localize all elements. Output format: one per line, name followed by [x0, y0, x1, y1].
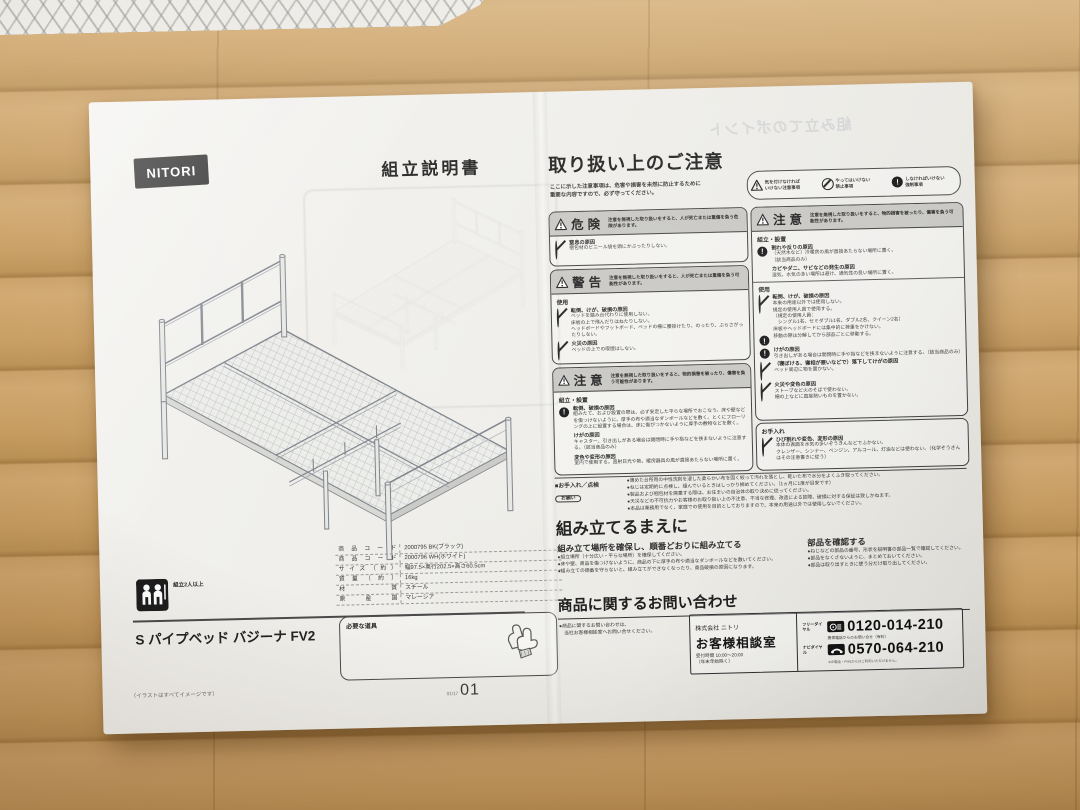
navi-dial-number: 0570-064-210 [848, 639, 945, 657]
spec-label: 質量（約） [336, 574, 401, 585]
warning-box: 警告 注意を無視した取り扱いをすると、人が死亡または重傷を負う可能性があります。… [550, 265, 751, 365]
caution-item: （寝ぼける、寝相が悪いなどで）落下してけがの原因 ベッド周辺に物を置かない。 [760, 357, 961, 381]
spec-label: 材質 [336, 584, 401, 595]
prohibition-icon [760, 383, 762, 402]
caution-title: 注意 [573, 369, 606, 389]
assembly-people-label: 組立2人以上 [173, 578, 204, 589]
page-number-left: 01/17 01 [446, 681, 480, 700]
danger-item: 窒息の原因 梱包材のビニール袋を頭にかぶったりしない。 [555, 236, 742, 259]
handling-precautions-header: 取り扱い上のご注意 [548, 148, 724, 178]
danger-desc: 注意を無視した取り扱いをすると、人が死亡または重傷を負う危険があります。 [608, 214, 742, 229]
legend-label: やってはいけない禁止事項 [835, 177, 870, 189]
check-parts-bullets: ●ねじなどの部品の番号、形状を説明書の部品一覧で確認してください。 ●部品をなく… [807, 546, 972, 571]
check-parts-title: 部品を確認する [807, 535, 866, 548]
warning-title: 警告 [572, 271, 605, 291]
caution-item: ! 転倒、破損の原因 組みたて、および設置の際は、必ず安定した平らな場所でおこな… [559, 402, 747, 469]
photo-scene: 組み立てのポイント NITORI 組立説明書 [0, 0, 1080, 810]
spec-label: 原産国 [336, 594, 401, 605]
navi-dial-label: ナビダイヤル [803, 645, 825, 654]
legend-label: しなければいけない強制事項 [905, 175, 945, 187]
spec-table: 商品コード 2000795 BK(ブラック) 商品コード 2000796 WH(… [335, 540, 562, 605]
maintenance-label: ■お手入れ／点検 [555, 479, 627, 494]
warning-desc: 注意を無視した取り扱いをすると、人が死亡または重傷を負う可能性があります。 [609, 272, 743, 287]
cause-line: キャスター、引き出しがある場合は開閉時に手や指などを挟まないように注意する。（該… [574, 436, 747, 453]
caution-box-right: 注意 注意を無視した取り扱いをすると、物的損害を被ったり、傷害を負う可能性があり… [750, 202, 968, 421]
mandatory-icon: ! [759, 336, 769, 346]
warning-item: 転倒、けが、破損の原因 ベッドを踏み台代わりに使用しない。 床板の上で飛んだりは… [557, 304, 745, 340]
office-hours: 受付時間 10:00～20:00（年末年始除く） [696, 651, 792, 665]
assembly-place-bullets: ●組立場所（十分広い・平らな場所）を確保してください。 ●床や壁、商品を傷つけな… [557, 550, 795, 576]
spec-label: 商品コード [335, 544, 400, 555]
bed-illustration [132, 238, 539, 567]
nitori-logo: NITORI [134, 154, 210, 188]
prohibition-icon [557, 308, 559, 327]
two-person-icon [136, 579, 169, 612]
illustration-disclaimer: （イラストはすべてイメージです） [131, 690, 218, 700]
required-tools-box: 必要な道具 [339, 612, 558, 681]
mandatory-icon: ! [757, 246, 767, 256]
assembly-people-note: 組立2人以上 [136, 578, 204, 612]
warning-triangle-icon [756, 212, 769, 226]
inquiry-note-line: 当社お客様相談室へお問い合せください。 [559, 628, 684, 638]
page-number: 01 [460, 681, 480, 699]
maintenance-section: ■お手入れ／点検 ●薄めた台所用の中性洗剤を浸した柔らかい布を固く絞って汚れを落… [555, 468, 968, 516]
mandatory-icon: ! [892, 176, 903, 187]
required-tools-title: 必要な道具 [346, 621, 377, 631]
office-name: お客様相談室 [695, 631, 791, 652]
legend-label: 気を付けなければいけない注意事項 [765, 179, 800, 191]
page-code: 01/17 [447, 691, 459, 696]
manual-title: 組立説明書 [336, 152, 527, 181]
precautions-intro: ここに示した注意事項は、危害や損害を未然に防止するために 重要な内容ですので、必… [550, 180, 746, 200]
danger-box: 危険 注意を無視した取り扱いをすると、人が死亡または重傷を負う危険があります。 … [548, 207, 748, 267]
phone-handset-icon [828, 644, 845, 655]
warning-item: 火災の原因 ベッドの上での喫煙はしない。 [557, 337, 744, 360]
danger-title: 危険 [571, 213, 604, 233]
care-box: お手入れ ひび割れや変色、変形の原因 本体の表面を水気の多いぞうきんなどでふかな… [755, 418, 969, 471]
legend-prohibited: やってはいけない禁止事項 [818, 176, 889, 190]
work-gloves-icon [496, 621, 549, 662]
prohibition-icon [758, 295, 760, 314]
wire-rack [0, 0, 495, 35]
caution-title: 注意 [773, 209, 806, 229]
caution-item: 火災や変色の原因 ストーブなど火のそばで使わない。 柵の上などに直接熱いものを置… [760, 378, 961, 402]
caution-item: ! 割れや反りの原因 （天然木など）冷暖房の風が直接あたらない場所に置く。 （該… [757, 241, 959, 280]
caution-item: 転倒、けが、破損の原因 本来の用途以外では使用しない。 規定の使用人員で使用する… [758, 291, 960, 334]
prohibition-icon [760, 362, 762, 381]
contact-box: 株式会社 ニトリ お客様相談室 受付時間 10:00～20:00（年末年始除く）… [689, 608, 964, 674]
product-name: S パイプベッド バジーナ FV2 [135, 624, 315, 648]
contact-office: 株式会社 ニトリ お客様相談室 受付時間 10:00～20:00（年末年始除く） [690, 613, 798, 674]
prohibition-icon [762, 437, 764, 456]
instruction-manual-sheet: 組み立てのポイント NITORI 組立説明書 [89, 82, 988, 735]
cause-line: 組みたて、および設置の際は、必ず安定した平らな場所でおこなう。床や壁などを傷つけ… [573, 408, 746, 431]
symbol-legend: 気を付けなければいけない注意事項 やってはいけない禁止事項 ! しなければいけな… [746, 166, 961, 200]
contact-numbers: フリーダイヤル 0120-014-210 携帯電話からのお問い合せ（有料） ナビ… [797, 609, 963, 671]
mandatory-icon: ! [559, 407, 569, 417]
care-item: ひび割れや変色、変形の原因 本体の表面を水気の多いぞうきんなどでふかない。 クレ… [762, 433, 964, 463]
legend-mandatory: ! しなければいけない強制事項 [889, 175, 960, 188]
bleed-through-title: 組み立てのポイント [707, 113, 852, 140]
prohibition-icon [555, 240, 557, 259]
before-assembly-header: 組み立てるまえに [556, 513, 689, 540]
request-pill: お願い [555, 495, 582, 503]
caution-desc: 注意を無視した取り扱いをすると、物的損害を被ったり、傷害を負う可能性があります。 [610, 370, 745, 385]
warning-triangle-icon [558, 373, 570, 387]
free-dial-number: 0120-014-210 [847, 616, 944, 634]
caution-desc: 注意を無視した取り扱いをすると、物的損害を被ったり、傷害を負う可能性があります。 [810, 209, 958, 224]
free-dial-label: フリーダイヤル [802, 622, 824, 631]
warning-triangle-icon [555, 217, 568, 231]
legend-caution: 気を付けなければいけない注意事項 [748, 178, 819, 191]
inquiry-note: ●商品に関するお問い合わせは、 当社お客様相談室へお問い合せください。 [559, 621, 684, 638]
prohibition-icon [821, 177, 833, 189]
warning-triangle-icon [556, 275, 568, 289]
prohibition-icon [557, 342, 559, 361]
mandatory-icon: ! [760, 348, 770, 358]
spec-label: サイズ（約） [336, 564, 401, 575]
spec-label: 商品コード [335, 554, 400, 565]
caution-box-left: 注意 注意を無視した取り扱いをすると、物的損害を被ったり、傷害を負う可能性があり… [552, 363, 753, 476]
free-dial-icon [827, 621, 844, 632]
warning-triangle-icon [751, 180, 763, 191]
